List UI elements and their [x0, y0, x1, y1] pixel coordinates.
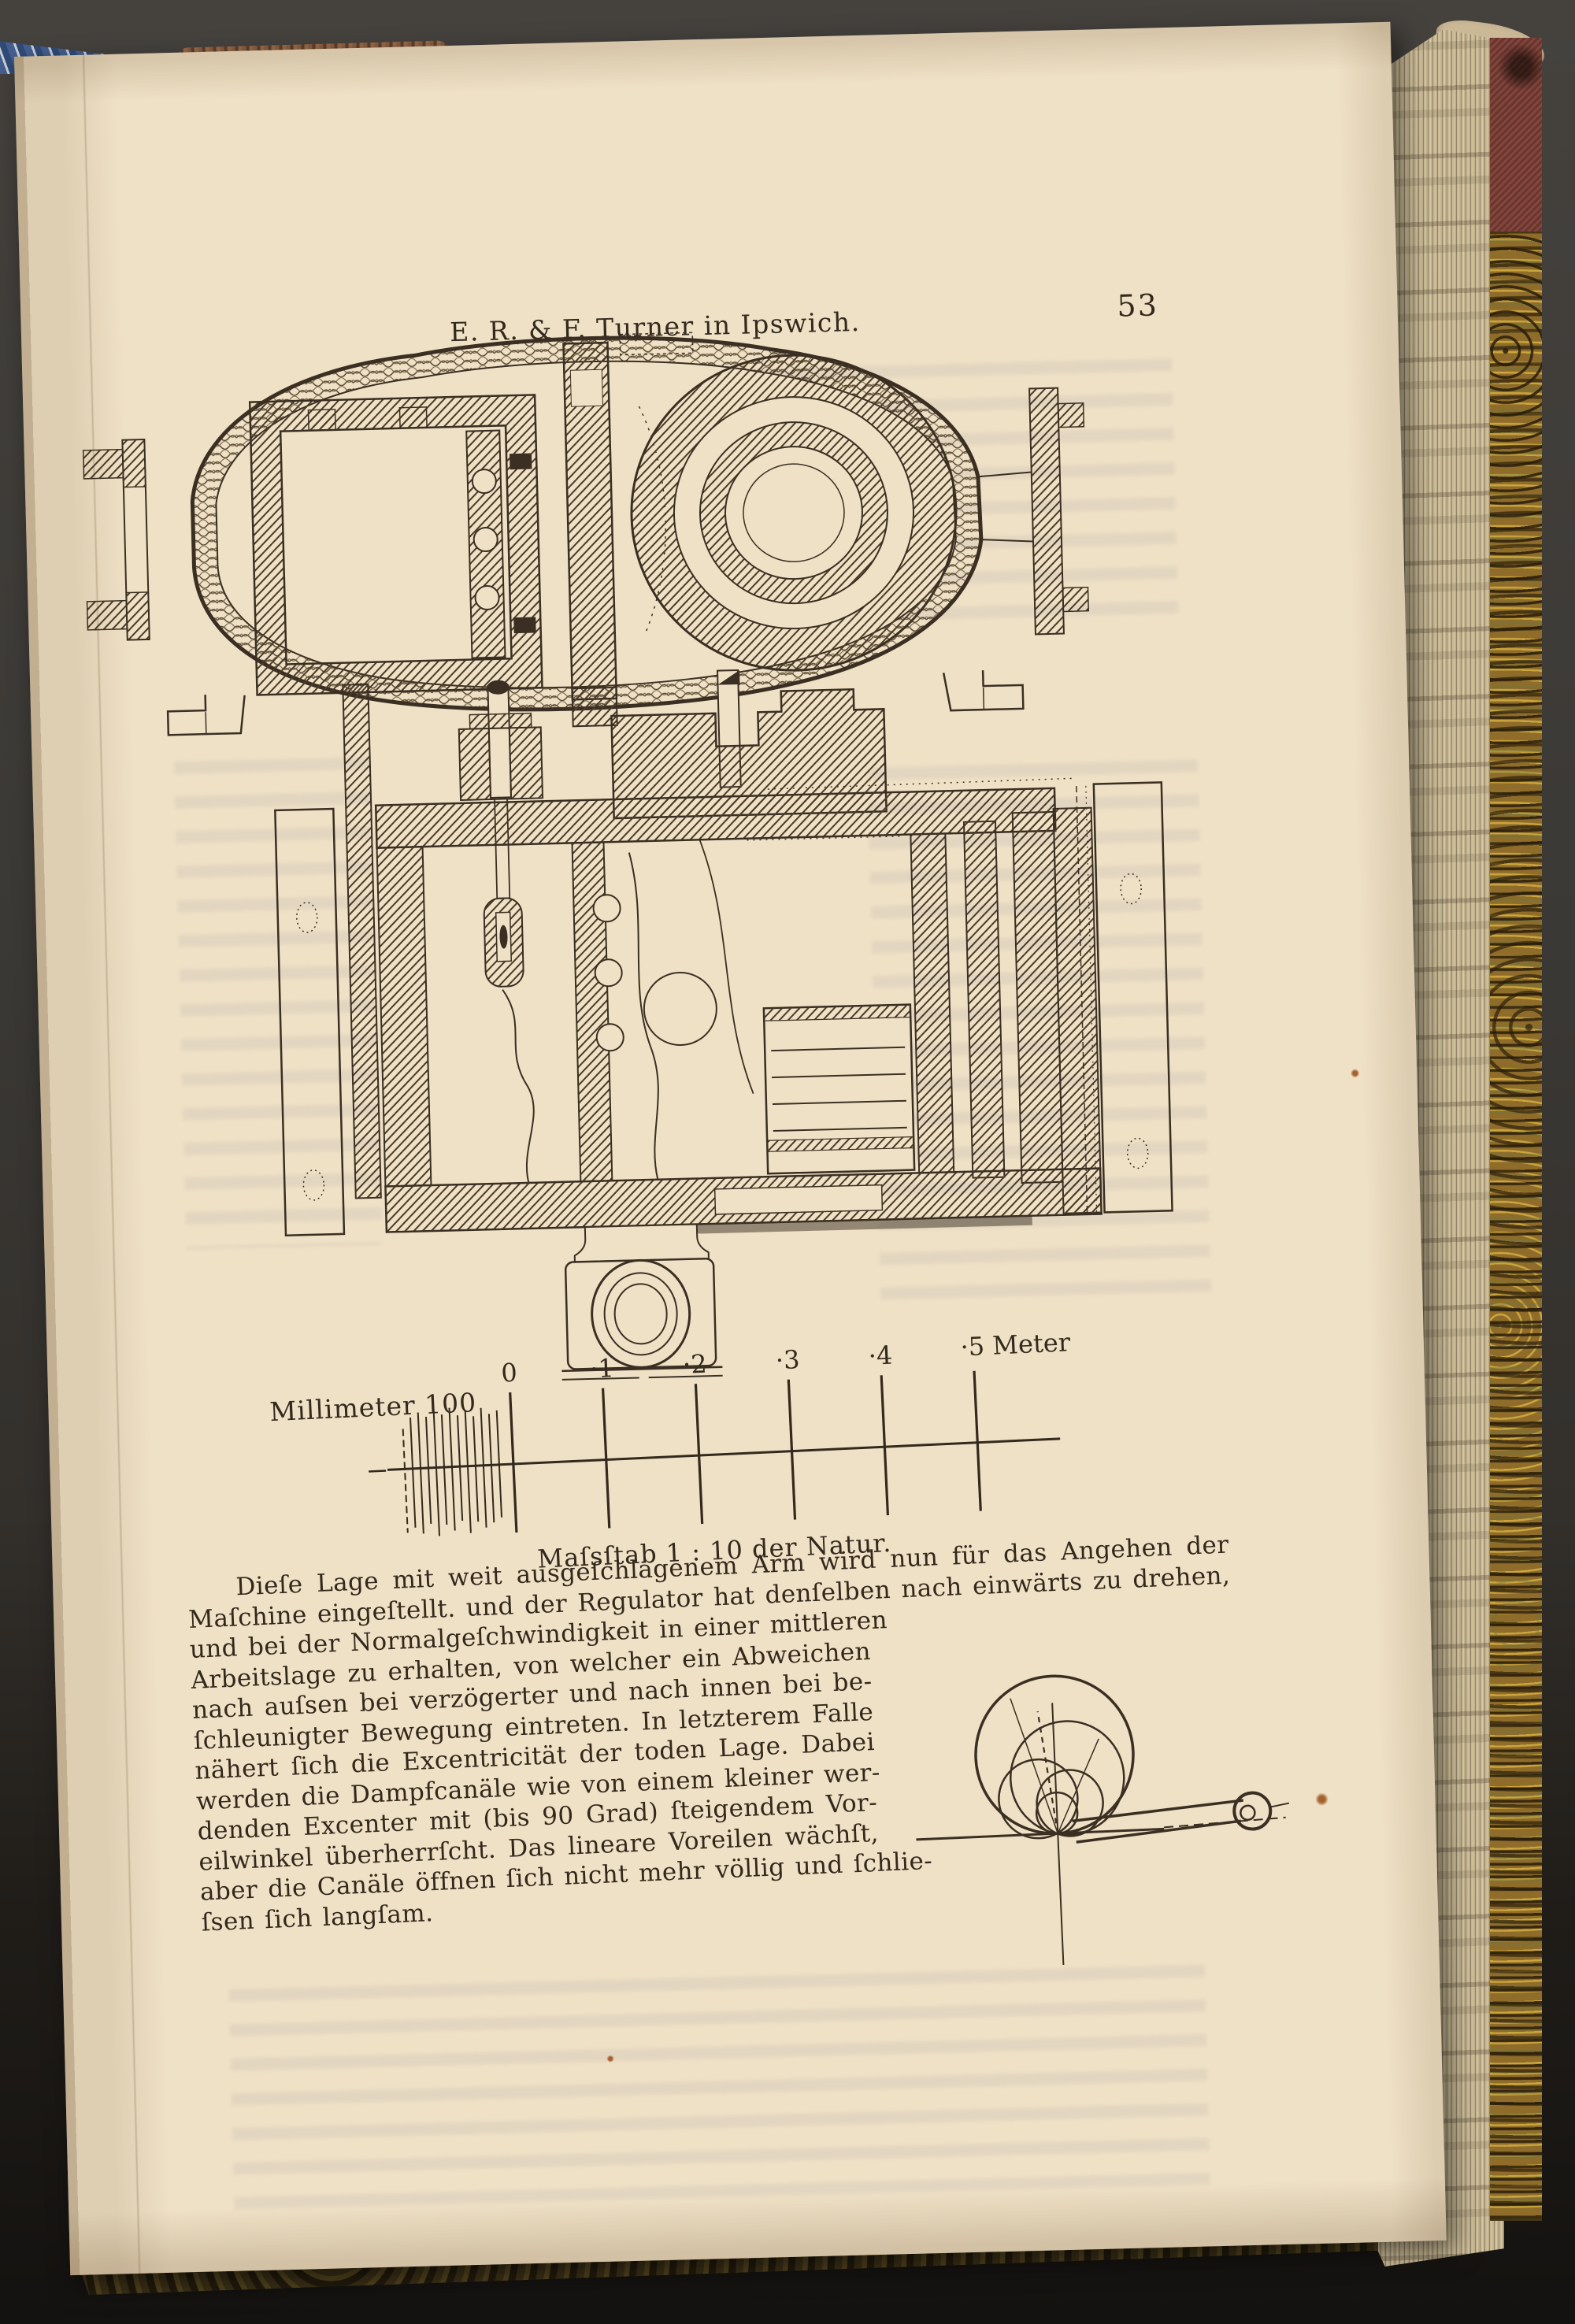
- right-flange: [977, 387, 1089, 636]
- scale-tick-label-2: ·2: [682, 1349, 707, 1380]
- page-number: 53: [1117, 287, 1158, 323]
- valve-rod: [458, 679, 545, 899]
- eccentric-circle: [1008, 1719, 1126, 1837]
- millimeter-ticks: [402, 1406, 502, 1537]
- figure-engine-vertical-section: [254, 658, 1177, 1389]
- chest-frame: [376, 788, 1102, 1242]
- book-cover-edge: [1490, 38, 1542, 2221]
- scale-end-label: ·5 Meter: [960, 1327, 1072, 1362]
- scale-tick-label-0: 0: [500, 1358, 517, 1388]
- meter-ticks: [510, 1371, 981, 1533]
- tall-side-bar: [343, 684, 380, 1199]
- left-cover-plate: [275, 809, 344, 1236]
- rod-end-line: [1270, 1803, 1289, 1807]
- scale-baseline-dash: [369, 1470, 386, 1471]
- scanned-book-photo: E. R. & F. Turner in Ipswich. 53: [0, 0, 1575, 2324]
- rod-eye: [1233, 1792, 1271, 1830]
- rod-eye-center: [1240, 1805, 1255, 1820]
- eccentric-rod: [1072, 1800, 1244, 1821]
- scale-left-label: Millimeter 100: [269, 1387, 477, 1427]
- scale-tick-label-1: ·1: [589, 1353, 614, 1384]
- scale-baseline: [387, 1439, 1060, 1470]
- left-flange: [83, 439, 149, 641]
- figure-eccentric-circles-diagram: [895, 1620, 1303, 1975]
- foxing-spot: [1351, 1069, 1359, 1077]
- bleed-through-patch: [228, 1965, 1210, 2226]
- book-page: E. R. & F. Turner in Ipswich. 53: [14, 22, 1447, 2275]
- cover-red-leather: [1490, 38, 1542, 232]
- scale-tick-label-3: ·3: [775, 1344, 800, 1375]
- piston-stack: [764, 1005, 914, 1174]
- valve-spindle-detail: [483, 839, 756, 1184]
- cover-marbled-paper: [1490, 232, 1542, 2221]
- scale-tick-label-4: ·4: [868, 1340, 893, 1371]
- foxing-spot: [1315, 1792, 1328, 1805]
